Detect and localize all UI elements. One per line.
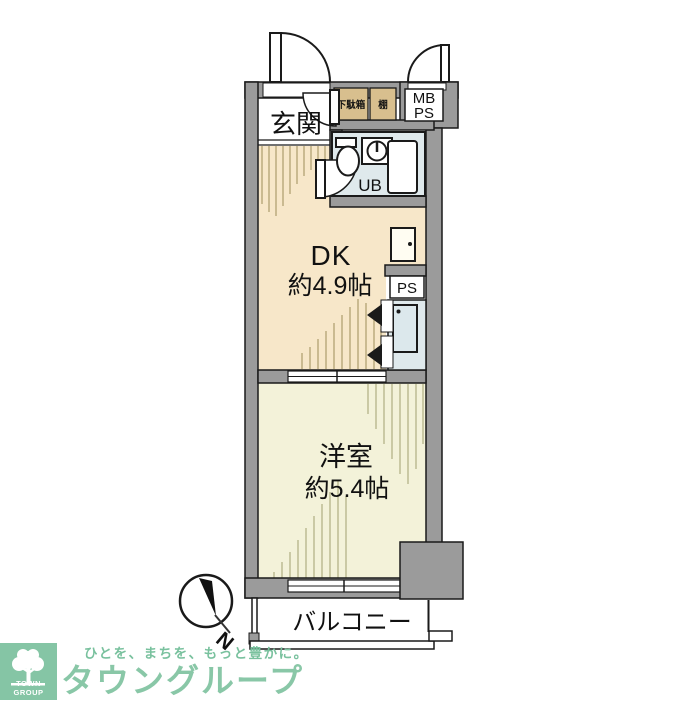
entrance-label: 玄関 (270, 109, 322, 139)
balcony-window (288, 580, 400, 592)
logo-caption: TOWN GROUP (0, 679, 57, 697)
floorplan-drawing: UB 下駄箱 棚 MB PS PS (0, 0, 700, 700)
dk-size-label: 約4.9帖 (288, 272, 373, 300)
meter-box-exterior-door (408, 45, 449, 82)
pillar (400, 542, 463, 599)
balcony-label: バルコニー (292, 609, 412, 636)
western-room-label: 洋室 (319, 442, 373, 472)
dk-label: DK (311, 240, 352, 271)
meter-box: MB PS (405, 89, 443, 122)
entrance-exterior-door (270, 33, 330, 82)
toilet-icon (336, 138, 359, 176)
brand-name: タウングループ (61, 654, 304, 702)
unit-bath-label: UB (358, 176, 382, 195)
town-group-logo: TOWN GROUP (0, 643, 57, 700)
floorplan-page: UB 下駄箱 棚 MB PS PS (0, 0, 700, 700)
shoe-box-label: 下駄箱 (337, 99, 366, 111)
unit-bath: UB (316, 132, 425, 198)
interior-door-icon (391, 228, 415, 261)
shelf-label: 棚 (378, 99, 388, 111)
bathtub-icon (388, 141, 417, 193)
western-room-size-label: 約5.4帖 (305, 475, 390, 503)
shelf: 棚 (370, 88, 396, 120)
pipe-space-label: PS (397, 280, 417, 297)
sliding-partition (288, 371, 386, 382)
meter-box-label-2: PS (414, 105, 434, 122)
